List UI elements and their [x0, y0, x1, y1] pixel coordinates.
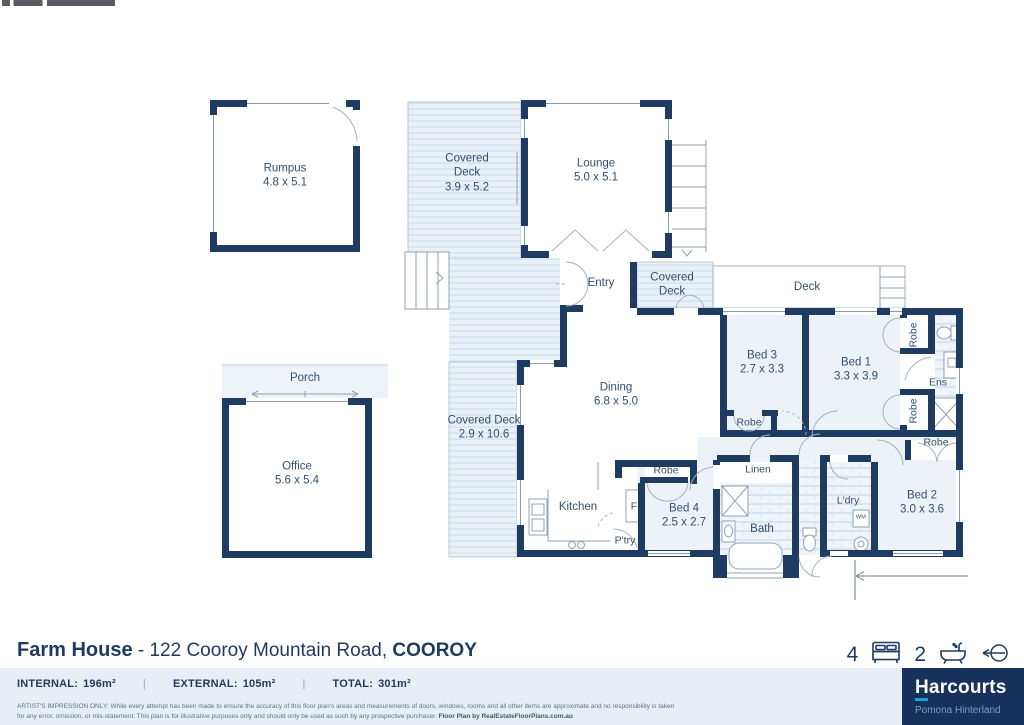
- property-title: Farm House - 122 Cooroy Mountain Road, C…: [17, 639, 477, 662]
- room-label-robe-bed1-lower: Robe: [907, 398, 920, 423]
- brand-office: Pomona Hinterland: [915, 705, 1024, 716]
- room-label-deck: Deck: [794, 280, 820, 294]
- disclaimer-line2: for any error, omission, or mis-statemen…: [17, 713, 437, 720]
- room-label-bed4: Bed 42.5 x 2.7: [662, 502, 706, 531]
- room-label-washing-machine: WM: [856, 515, 866, 522]
- bath-icon: [939, 641, 967, 669]
- room-label-covered-deck-side: Covered Deck2.9 x 10.6: [447, 414, 521, 443]
- floorplan-page: Rumpus4.8 x 5.1 Covered Deck3.9 x 5.2 Lo…: [0, 0, 1024, 725]
- area-stats: INTERNAL: 196m² | EXTERNAL: 105m² | TOTA…: [17, 678, 411, 690]
- external-area-value: 105m²: [243, 678, 276, 690]
- total-area-value: 301m²: [378, 678, 411, 690]
- stat-separator: |: [302, 678, 305, 690]
- room-label-bed2: Bed 23.0 x 3.6: [900, 489, 944, 518]
- internal-area-value: 196m²: [83, 678, 116, 690]
- room-label-robe-bed1-upper: Robe: [907, 322, 920, 347]
- room-label-porch: Porch: [290, 371, 320, 385]
- harcourts-logo: Harcourts Pomona Hinterland: [902, 668, 1024, 725]
- property-suburb: COOROY: [392, 640, 476, 661]
- room-label-linen: Linen: [745, 463, 771, 476]
- room-label-covered-deck-upper: Covered Deck3.9 x 5.2: [435, 151, 499, 194]
- room-label-bath: Bath: [750, 522, 774, 536]
- property-feature-icons: 4 2: [847, 641, 1010, 669]
- room-label-kitchen: Kitchen: [559, 500, 597, 514]
- disclaimer-text: ARTIST'S IMPRESSION ONLY: While every at…: [17, 702, 877, 722]
- floorplan-linework: [0, 0, 1024, 632]
- room-label-robe-bed4: Robe: [653, 464, 678, 477]
- north-compass-icon: [980, 642, 1010, 669]
- baths-count: 2: [914, 643, 926, 667]
- disclaimer-line1: ARTIST'S IMPRESSION ONLY: While every at…: [17, 703, 674, 710]
- bed-icon: [871, 641, 901, 669]
- beds-count: 4: [847, 643, 859, 667]
- room-label-robe-bed3: Robe: [736, 416, 761, 429]
- room-label-pantry: P'try: [615, 534, 636, 547]
- property-address: 122 Cooroy Mountain Road,: [149, 640, 387, 661]
- floorplan-credit: Floor Plan by RealEstateFloorPlans.com.a…: [439, 713, 573, 720]
- title-separator: -: [138, 640, 144, 661]
- room-label-rumpus: Rumpus4.8 x 5.1: [263, 162, 307, 191]
- room-label-bed1: Bed 13.3 x 3.9: [834, 356, 878, 385]
- property-name: Farm House: [17, 639, 133, 661]
- room-label-entry: Entry: [588, 276, 615, 290]
- room-label-bed3: Bed 32.7 x 3.3: [740, 349, 784, 378]
- room-label-laundry: L'dry: [837, 494, 859, 507]
- room-label-fridge: F: [631, 500, 637, 513]
- internal-area-label: INTERNAL:: [17, 678, 78, 690]
- room-label-ensuite: Ens: [929, 376, 947, 389]
- room-label-covered-deck-entry: Covered Deck: [640, 271, 704, 300]
- total-area-label: TOTAL:: [333, 678, 374, 690]
- external-area-label: EXTERNAL:: [173, 678, 238, 690]
- room-label-office: Office5.6 x 5.4: [275, 460, 319, 489]
- stat-separator: |: [143, 678, 146, 690]
- brand-underline: [915, 698, 928, 701]
- brand-name: Harcourts: [915, 677, 1024, 699]
- room-label-lounge: Lounge5.0 x 5.1: [574, 157, 618, 186]
- room-label-dining: Dining6.8 x 5.0: [594, 381, 638, 410]
- room-label-robe-bed2: Robe: [923, 436, 948, 449]
